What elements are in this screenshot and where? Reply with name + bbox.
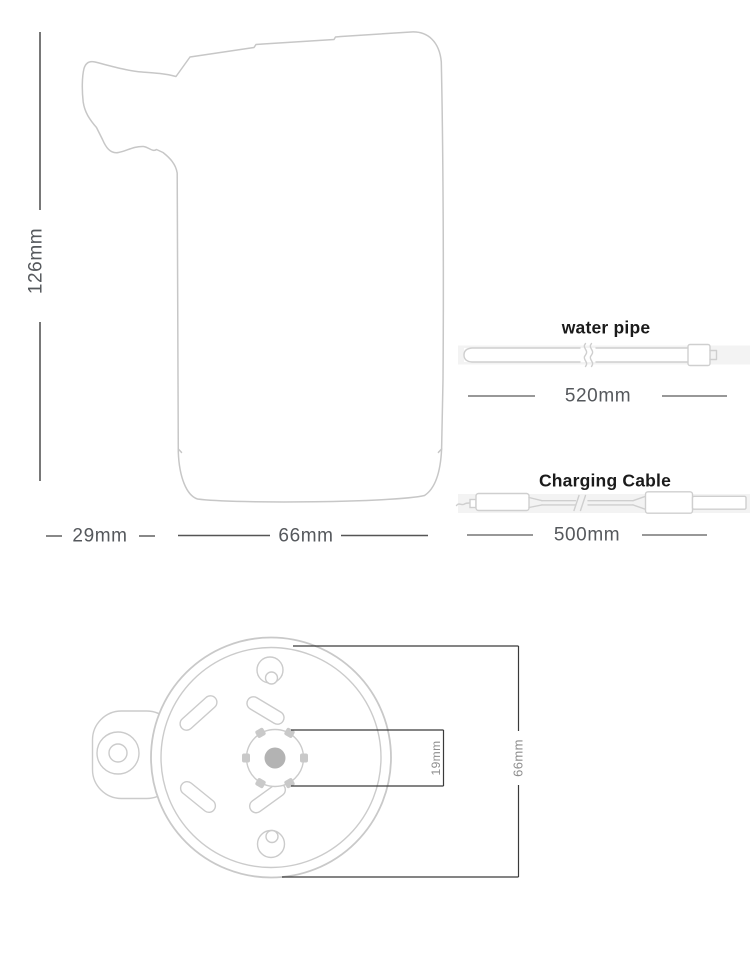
hub-center-dot — [265, 748, 286, 769]
product-dimension-diagram: 126mm 29mm 66mm water pipe 520mm Chargin… — [0, 0, 750, 963]
screw-hole-bottom — [266, 831, 278, 843]
height-dim-label: 126mm — [27, 228, 46, 294]
cable-left-connector — [476, 494, 529, 511]
water-pipe-label: water pipe — [562, 319, 651, 337]
charging-cable-label: Charging Cable — [539, 472, 671, 490]
pipe-connector — [688, 345, 710, 366]
base-diameter-dim-label: 66mm — [512, 739, 525, 777]
tab-hole-inner — [109, 744, 127, 762]
side-view-outline — [82, 32, 443, 502]
water-pipe-drawing — [458, 344, 750, 367]
charging-cable-drawing — [457, 492, 750, 513]
screw-hole-top — [266, 672, 278, 684]
pipe-length-dim-label: 520mm — [565, 387, 631, 406]
hub-dim-label: 19mm — [430, 741, 442, 776]
cable-left-neck — [470, 500, 476, 508]
cable-right-connector — [646, 492, 693, 513]
cable-right-plug — [693, 496, 747, 509]
spout-width-dim-label: 29mm — [72, 527, 127, 546]
pump-body-outline — [82, 32, 443, 502]
body-width-dim-label: 66mm — [278, 526, 333, 545]
cable-length-dim-label: 500mm — [554, 526, 620, 545]
bottom-view-drawing — [93, 638, 392, 878]
